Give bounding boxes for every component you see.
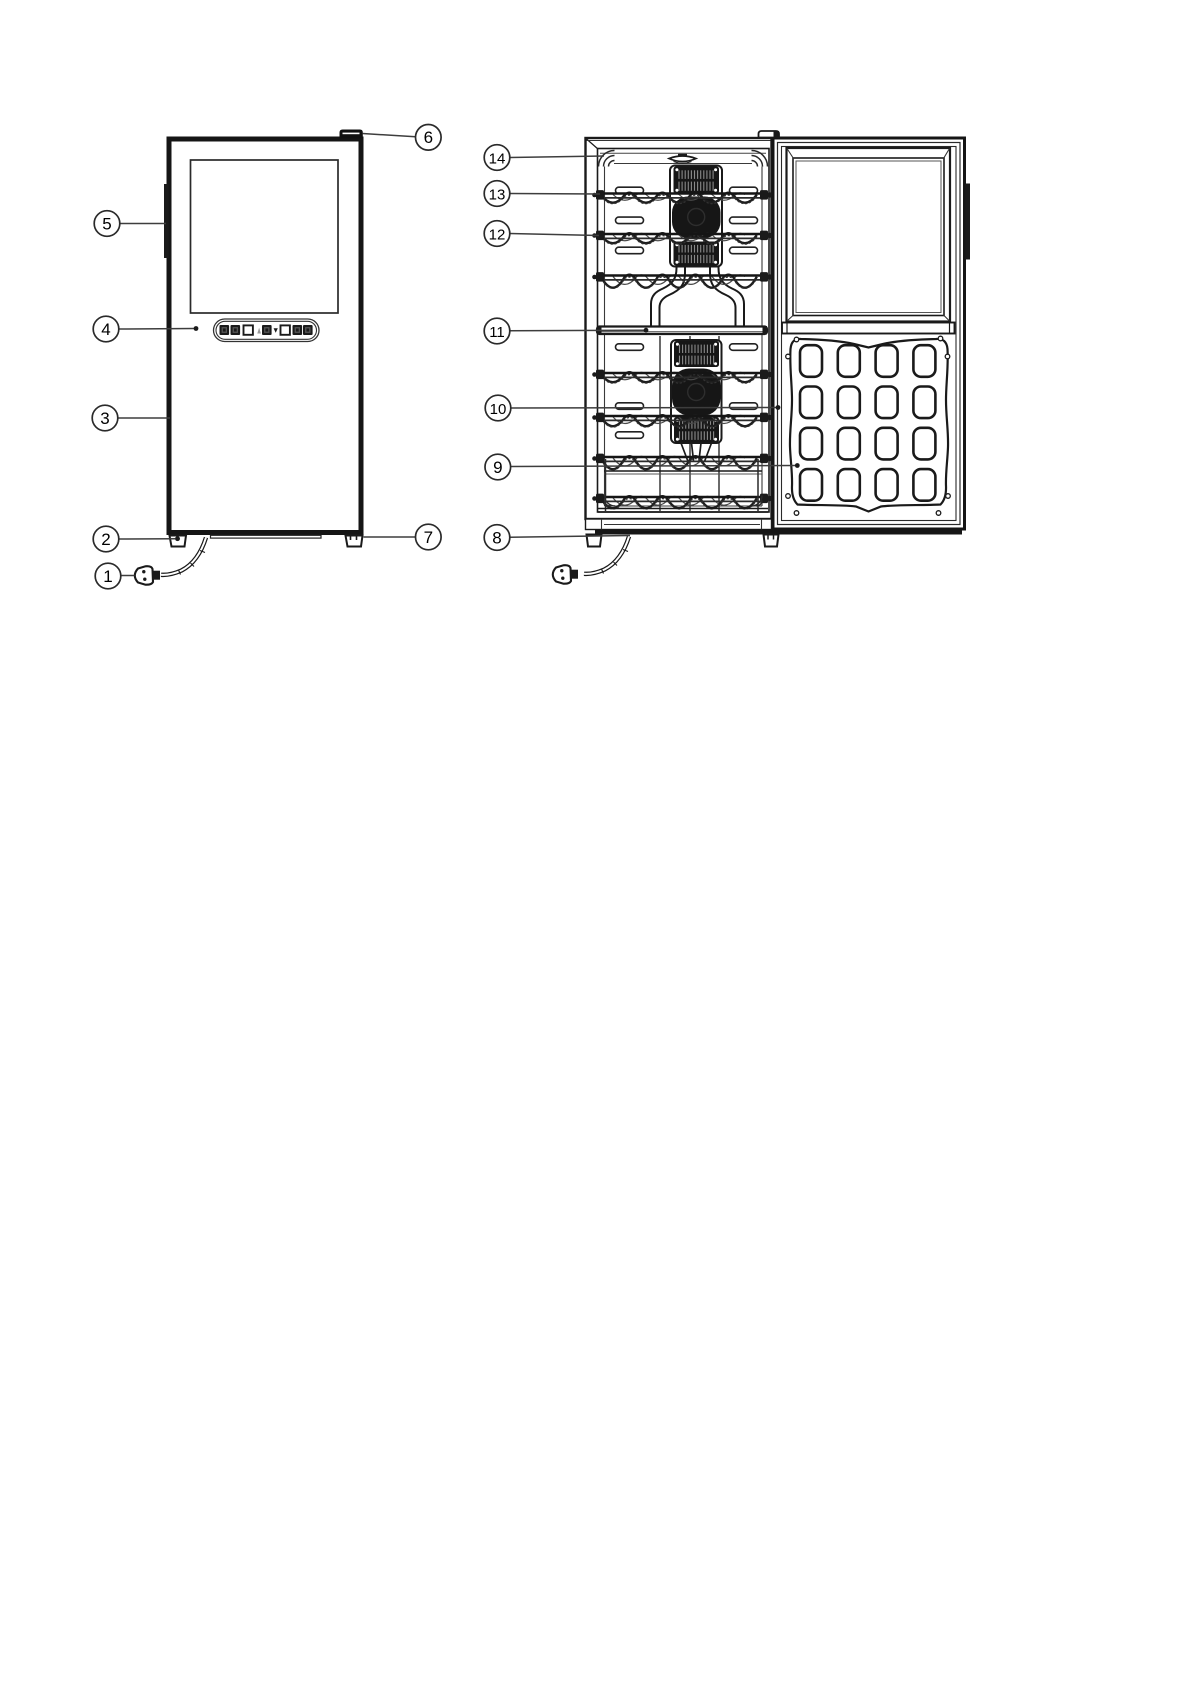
svg-text:4: 4 xyxy=(101,320,110,339)
svg-text:6: 6 xyxy=(424,128,433,147)
svg-text:7: 7 xyxy=(424,528,433,547)
svg-text:14: 14 xyxy=(489,150,506,167)
svg-text:2: 2 xyxy=(101,530,110,549)
svg-text:10: 10 xyxy=(490,401,507,418)
svg-text:9: 9 xyxy=(493,458,502,477)
svg-text:1: 1 xyxy=(103,567,112,586)
svg-text:12: 12 xyxy=(489,226,506,243)
svg-text:5: 5 xyxy=(102,214,111,233)
svg-text:3: 3 xyxy=(100,409,109,428)
svg-text:11: 11 xyxy=(489,324,505,341)
svg-text:8: 8 xyxy=(492,528,501,547)
svg-text:13: 13 xyxy=(489,186,506,203)
